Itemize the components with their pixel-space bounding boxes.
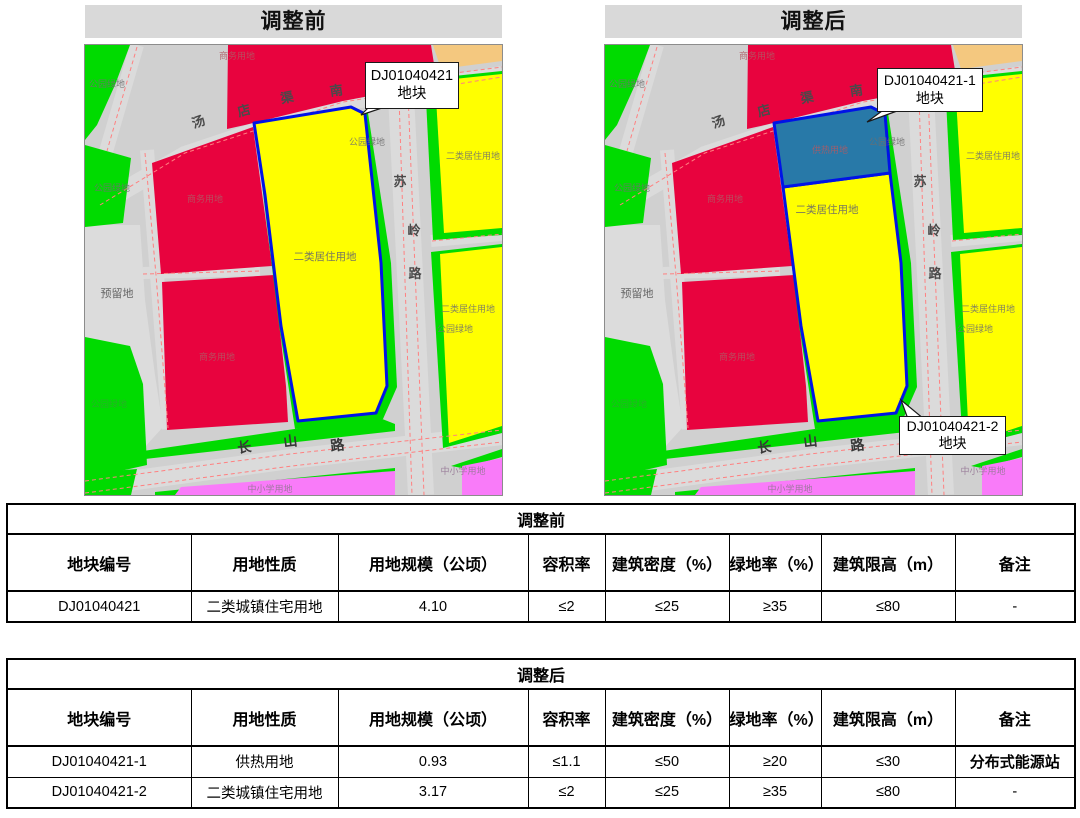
map-before: 公园绿地商务用地汤店渠南公园绿地二类居住用地公园绿地商务用地预留地二类居住用地苏… xyxy=(85,45,502,495)
cell-height-limit: ≤80 xyxy=(821,591,955,622)
map-label: 二类居住用地 xyxy=(796,203,859,216)
cell-far: ≤2 xyxy=(528,777,605,808)
map-label: 公园绿地 xyxy=(869,136,905,147)
col-header: 建筑密度（%） xyxy=(605,534,729,591)
col-header: 用地性质 xyxy=(191,689,338,746)
col-header: 容积率 xyxy=(528,534,605,591)
map-label: 商务用地 xyxy=(199,351,235,362)
callout-word: 地块 xyxy=(939,435,967,453)
col-header: 建筑限高（m） xyxy=(821,689,955,746)
cell-far: ≤1.1 xyxy=(528,746,605,777)
map-label: 二类居住用地 xyxy=(961,303,1015,314)
col-header: 地块编号 xyxy=(7,534,191,591)
callout-code: DJ01040421 xyxy=(371,67,453,85)
map-label: 中小学用地 xyxy=(247,483,292,494)
col-header: 绿地率（%） xyxy=(729,689,821,746)
cell-far: ≤2 xyxy=(528,591,605,622)
map-label: 预留地 xyxy=(621,287,654,300)
map-label: 公园绿地 xyxy=(614,182,650,193)
map-label: 公园绿地 xyxy=(94,182,130,193)
map-label: 商务用地 xyxy=(719,351,755,362)
cell-density: ≤50 xyxy=(605,746,729,777)
cell-area: 4.10 xyxy=(338,591,528,622)
cell-density: ≤25 xyxy=(605,591,729,622)
table-row: DJ01040421 二类城镇住宅用地 4.10 ≤2 ≤25 ≥35 ≤80 … xyxy=(7,591,1075,622)
col-header: 绿地率（%） xyxy=(729,534,821,591)
planning-adjustment-page: 调整前 调整后 公园绿地商务用地汤店渠南公园绿地二类居住用地公园绿地商务用地预留… xyxy=(0,0,1080,818)
cell-land-use: 二类城镇住宅用地 xyxy=(191,777,338,808)
table-header-row: 地块编号 用地性质 用地规模（公顷） 容积率 建筑密度（%） 绿地率（%） 建筑… xyxy=(7,689,1075,746)
map-label: 苏 xyxy=(393,174,406,189)
callout-code: DJ01040421-2 xyxy=(907,418,999,436)
table-row: DJ01040421-1 供热用地 0.93 ≤1.1 ≤50 ≥20 ≤30 … xyxy=(7,746,1075,777)
cell-density: ≤25 xyxy=(605,777,729,808)
table-header-row: 地块编号 用地性质 用地规模（公顷） 容积率 建筑密度（%） 绿地率（%） 建筑… xyxy=(7,534,1075,591)
map-label: 商务用地 xyxy=(739,50,775,61)
map-label: 公园绿地 xyxy=(609,78,645,89)
map-label: 二类居住用地 xyxy=(441,303,495,314)
cell-plot-id: DJ01040421-1 xyxy=(7,746,191,777)
cell-green-rate: ≥35 xyxy=(729,591,821,622)
col-header: 备注 xyxy=(955,689,1075,746)
cell-land-use: 二类城镇住宅用地 xyxy=(191,591,338,622)
col-header: 用地规模（公顷） xyxy=(338,534,528,591)
map-label: 山 xyxy=(282,432,298,450)
map-label: 商务用地 xyxy=(219,50,255,61)
map-label: 中小学用地 xyxy=(960,465,1005,476)
map-label: 路 xyxy=(928,266,942,281)
map-after: 公园绿地商务用地汤店渠南供热用地公园绿地二类居住用地二类居住用地公园绿地商务用地… xyxy=(605,45,1022,495)
col-header: 建筑密度（%） xyxy=(605,689,729,746)
panel-title-after: 调整后 xyxy=(605,5,1022,38)
col-header: 地块编号 xyxy=(7,689,191,746)
col-header: 用地规模（公顷） xyxy=(338,689,528,746)
col-header: 备注 xyxy=(955,534,1075,591)
map-label: 苏 xyxy=(913,174,926,189)
map-label: 公园绿地 xyxy=(349,136,385,147)
cell-plot-id: DJ01040421-2 xyxy=(7,777,191,808)
callout-word: 地块 xyxy=(397,85,426,103)
map-label: 公园绿地 xyxy=(957,323,993,334)
table-title: 调整后 xyxy=(7,659,1075,689)
col-header: 建筑限高（m） xyxy=(821,534,955,591)
callout-word: 地块 xyxy=(916,90,944,108)
col-header: 容积率 xyxy=(528,689,605,746)
plot-callout: DJ01040421-1 地块 xyxy=(877,68,983,112)
cell-area: 3.17 xyxy=(338,777,528,808)
col-header: 用地性质 xyxy=(191,534,338,591)
table-before: 调整前 地块编号 用地性质 用地规模（公顷） 容积率 建筑密度（%） 绿地率（%… xyxy=(6,503,1076,623)
table-title-row: 调整后 xyxy=(7,659,1075,689)
callout-code: DJ01040421-1 xyxy=(884,72,976,90)
map-label: 公园绿地 xyxy=(437,323,473,334)
map-label: 岭 xyxy=(407,223,420,238)
map-label: 预留地 xyxy=(101,287,134,300)
map-label: 商务用地 xyxy=(707,193,743,204)
table-row: DJ01040421-2 二类城镇住宅用地 3.17 ≤2 ≤25 ≥35 ≤8… xyxy=(7,777,1075,808)
cell-land-use: 供热用地 xyxy=(191,746,338,777)
map-label: 商务用地 xyxy=(187,193,223,204)
cell-remark: - xyxy=(955,777,1075,808)
table-title-row: 调整前 xyxy=(7,504,1075,534)
map-label: 公园绿地 xyxy=(611,398,647,409)
map-label: 南 xyxy=(849,82,864,99)
cell-remark: 分布式能源站 xyxy=(955,746,1075,777)
map-label: 二类居住用地 xyxy=(966,150,1020,161)
table-after: 调整后 地块编号 用地性质 用地规模（公顷） 容积率 建筑密度（%） 绿地率（%… xyxy=(6,658,1076,809)
cell-height-limit: ≤80 xyxy=(821,777,955,808)
cell-green-rate: ≥35 xyxy=(729,777,821,808)
map-label: 路 xyxy=(408,266,422,281)
map-label: 二类居住用地 xyxy=(446,150,500,161)
map-label: 中小学用地 xyxy=(767,483,812,494)
map-label: 公园绿地 xyxy=(91,398,127,409)
cell-area: 0.93 xyxy=(338,746,528,777)
map-label: 岭 xyxy=(927,223,940,238)
cell-remark: - xyxy=(955,591,1075,622)
cell-height-limit: ≤30 xyxy=(821,746,955,777)
map-label: 公园绿地 xyxy=(89,78,125,89)
map-label: 二类居住用地 xyxy=(294,250,357,263)
map-label: 山 xyxy=(802,432,818,450)
map-label: 中小学用地 xyxy=(440,465,485,476)
map-label: 南 xyxy=(329,82,344,99)
cell-plot-id: DJ01040421 xyxy=(7,591,191,622)
cell-green-rate: ≥20 xyxy=(729,746,821,777)
panel-title-before: 调整前 xyxy=(85,5,502,38)
plot-callout: DJ01040421 地块 xyxy=(365,62,459,109)
map-label: 供热用地 xyxy=(812,144,848,155)
table-title: 调整前 xyxy=(7,504,1075,534)
plot-callout: DJ01040421-2 地块 xyxy=(899,416,1006,455)
